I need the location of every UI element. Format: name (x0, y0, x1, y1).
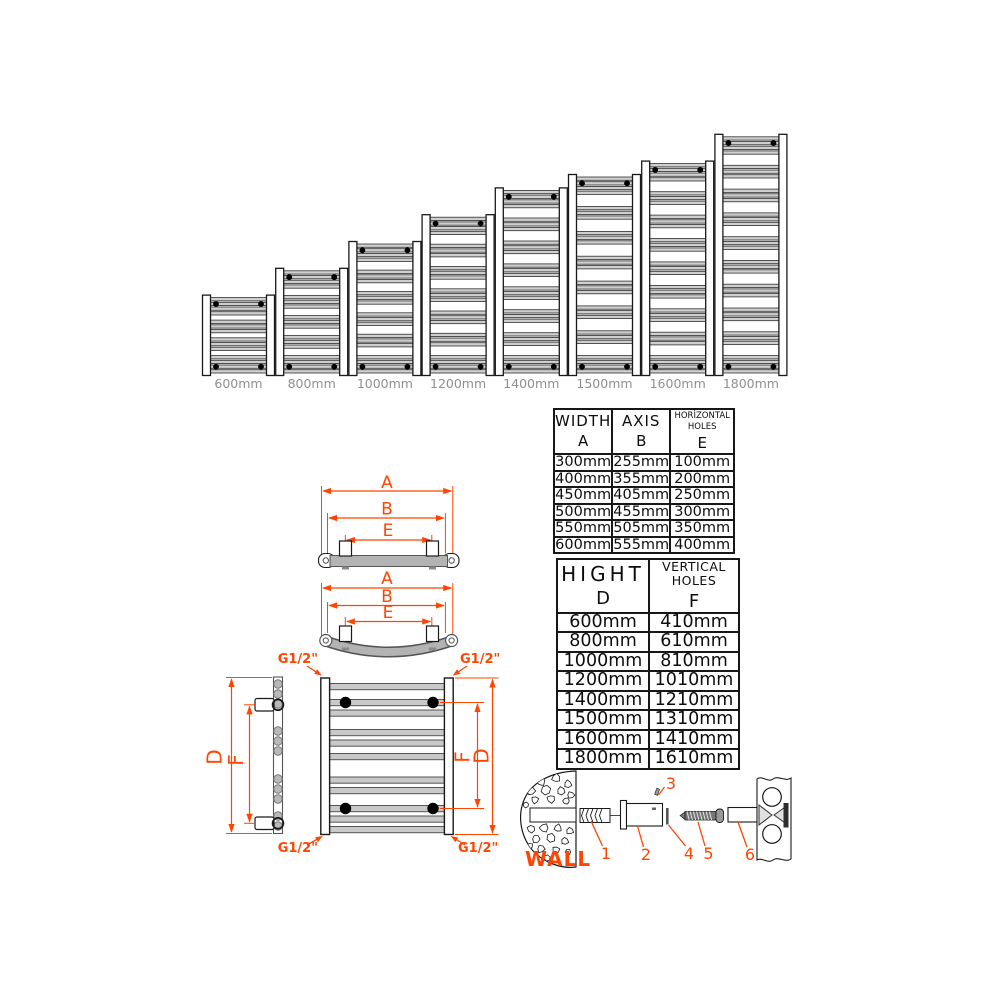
rung (357, 322, 413, 325)
spec-cell: 300mm (670, 504, 734, 521)
part-number: 2 (641, 845, 651, 864)
radiator-size-label: 1200mm (430, 376, 486, 391)
rung (650, 337, 706, 340)
grub-screw-hole (652, 808, 656, 811)
radiator-1800mm: 1800mm (715, 134, 787, 391)
mounting-hole (579, 180, 585, 186)
rung (650, 262, 706, 265)
rung (211, 320, 267, 323)
part-number: 3 (666, 774, 676, 793)
rung (577, 256, 633, 259)
column-letter: A (555, 432, 611, 450)
spec-cell: 350mm (670, 520, 734, 537)
spec-cell: 1410mm (649, 730, 739, 750)
connection-label: G1/2" (460, 652, 500, 667)
mounting-hole (331, 274, 337, 280)
tube-end (274, 775, 282, 783)
mounting-hole (213, 364, 219, 370)
rung (503, 370, 559, 373)
side-tube (559, 188, 567, 376)
spec-cell: 250mm (670, 487, 734, 504)
mounting-hole (427, 803, 438, 814)
rung (430, 294, 486, 297)
rung (577, 231, 633, 234)
rung (723, 246, 779, 249)
side-tube (413, 242, 421, 376)
radiator-size-label: 1400mm (503, 376, 559, 391)
rung (723, 218, 779, 221)
rung (723, 356, 779, 359)
rung (650, 290, 706, 293)
column-letter: E (671, 434, 733, 452)
dim-letter-height: D (470, 748, 494, 763)
spec-cell: 410mm (649, 613, 739, 633)
mounting-hole (405, 247, 411, 253)
rung (650, 309, 706, 312)
rung (357, 344, 413, 347)
rung (503, 190, 559, 193)
rung (503, 205, 559, 208)
rung (577, 211, 633, 214)
spec-row: 400mm355mm200mm (554, 471, 734, 488)
mounting-hole (652, 167, 658, 173)
rung (330, 730, 445, 736)
rung (650, 173, 706, 176)
rung (211, 302, 267, 305)
rung (723, 199, 779, 202)
column-letter: D (558, 588, 648, 609)
drill-hole (530, 808, 576, 822)
rail-eyelet (323, 638, 328, 643)
mounting-hole (551, 194, 557, 200)
side-tube (203, 295, 211, 375)
radiator-1600mm: 1600mm (642, 161, 714, 391)
side-tube (633, 175, 641, 376)
column-title: AXIS (613, 413, 669, 430)
rung (650, 248, 706, 251)
spec-cell: 505mm (612, 520, 670, 537)
rung (577, 306, 633, 309)
rung (723, 294, 779, 297)
side-tube (715, 134, 723, 375)
spec-cell: 1010mm (649, 671, 739, 691)
spec-row: 300mm255mm100mm (554, 454, 734, 471)
radiator-size-lineup: 600mm800mm1000mm1200mm1400mm1500mm1600mm… (203, 134, 787, 391)
mounting-hole (697, 364, 703, 370)
rung (284, 276, 340, 279)
spec-header-cell: WIDTHA (554, 409, 612, 454)
rung (723, 146, 779, 149)
rung (723, 308, 779, 311)
rung (650, 370, 706, 373)
rung (723, 142, 779, 145)
rung (723, 337, 779, 340)
mounting-hole (340, 697, 351, 708)
mounting-hole (433, 221, 439, 227)
screw-tip (680, 812, 685, 820)
rung (330, 754, 445, 760)
rung (723, 165, 779, 168)
radiator-800mm: 800mm (276, 268, 348, 391)
clamp-plate (784, 803, 789, 828)
rung (357, 301, 413, 304)
rung (503, 356, 559, 359)
rung (650, 356, 706, 359)
spec-cell: 1500mm (557, 710, 649, 730)
dim-letter-width: A (381, 569, 393, 589)
wall-label: WALL (525, 847, 591, 871)
side-tube (422, 215, 430, 376)
rung (503, 250, 559, 253)
rung (723, 170, 779, 173)
column-letter: B (613, 432, 669, 450)
rung (211, 307, 267, 310)
leader-line (698, 822, 705, 846)
rung (430, 222, 486, 225)
rung (284, 365, 340, 368)
rung (650, 285, 706, 288)
rung (650, 332, 706, 335)
rung (723, 265, 779, 268)
frontview-radiator-diagram: F D (321, 678, 499, 835)
rung (357, 258, 413, 261)
leader-line (307, 666, 321, 675)
spec-header-row: HIGHTDVERTICALHOLESF (557, 559, 739, 613)
rung (284, 305, 340, 308)
rung (357, 253, 413, 256)
mounting-hole (624, 364, 630, 370)
spec-row: 1200mm1010mm (557, 671, 739, 691)
radiator-size-label: 600mm (214, 376, 262, 391)
wall-bracket (427, 541, 439, 556)
side-tube (569, 175, 577, 376)
mounting-hole (697, 167, 703, 173)
spec-cell: 550mm (554, 520, 612, 537)
spec-cell: 1200mm (557, 671, 649, 691)
dim-letter-vertical-holes: F (224, 754, 248, 766)
width-spec-table: WIDTHAAXISBHORİZONTALHOLESE300mm255mm100… (553, 408, 735, 554)
rung (577, 216, 633, 219)
part-number: 6 (745, 845, 755, 864)
rung (284, 316, 340, 319)
mounting-hole (331, 364, 337, 370)
rung (723, 175, 779, 178)
rung (503, 287, 559, 290)
spec-row: 1600mm1410mm (557, 730, 739, 750)
radiator-size-label: 1000mm (357, 376, 413, 391)
spec-cell: 600mm (554, 537, 612, 554)
part-number: 5 (703, 844, 713, 863)
rung (430, 343, 486, 346)
rung (723, 151, 779, 154)
radiator-size-label: 1500mm (576, 376, 632, 391)
rung (430, 227, 486, 230)
rung (650, 243, 706, 246)
column-title: WIDTH (555, 413, 611, 430)
rung (430, 276, 486, 279)
rung (723, 332, 779, 335)
rung (577, 177, 633, 180)
mounting-hole (624, 180, 630, 186)
rung (430, 217, 486, 220)
rung (577, 370, 633, 373)
mounting-hole (771, 364, 777, 370)
rung (211, 298, 267, 301)
rung (330, 777, 445, 783)
rung (330, 740, 445, 746)
rung (430, 365, 486, 368)
rung (650, 271, 706, 274)
rung (430, 249, 486, 252)
rung (284, 356, 340, 359)
spec-cell: 455mm (612, 504, 670, 521)
bracket-foot (429, 567, 436, 570)
tube-end (274, 785, 282, 793)
mounting-hole (579, 364, 585, 370)
tube-end (274, 747, 282, 755)
rung (330, 788, 445, 794)
bracket-foot (429, 648, 436, 651)
rung (503, 319, 559, 322)
rung (357, 339, 413, 342)
rail-eyelet (323, 558, 328, 563)
column-letter: F (650, 591, 738, 612)
rung (650, 314, 706, 317)
rung (723, 317, 779, 320)
rung (577, 241, 633, 244)
radiator-1400mm: 1400mm (495, 188, 567, 391)
rung (577, 331, 633, 334)
height-spec-table: HIGHTDVERTICALHOLESF600mm410mm800mm610mm… (556, 558, 740, 770)
rung (577, 365, 633, 368)
wall-stone (547, 833, 555, 842)
mounting-hole (478, 364, 484, 370)
rung (723, 241, 779, 244)
rung (503, 292, 559, 295)
rung (503, 269, 559, 272)
radiator-size-label: 1800mm (723, 376, 779, 391)
rung (723, 284, 779, 287)
wall-bracket (340, 541, 352, 556)
rung (723, 370, 779, 373)
rung (650, 168, 706, 171)
rung (503, 273, 559, 276)
spec-cell: 810mm (649, 652, 739, 672)
rung (330, 827, 445, 833)
rung (577, 356, 633, 359)
rung (430, 333, 486, 336)
side-tube (706, 161, 714, 375)
spec-cell: 1000mm (557, 652, 649, 672)
mounting-hole (286, 274, 292, 280)
rail-eyelet (449, 638, 454, 643)
rail-eyelet (449, 558, 454, 563)
rung (430, 244, 486, 247)
side-tube (486, 215, 494, 376)
rung (284, 370, 340, 373)
spec-row: 1800mm1610mm (557, 749, 739, 769)
rung (357, 356, 413, 359)
rung (284, 360, 340, 363)
tube-end (274, 737, 282, 745)
rung (430, 267, 486, 270)
wall-bracket (340, 626, 352, 642)
dim-letter-width: A (381, 473, 393, 493)
leader-line (591, 821, 603, 846)
mounting-hole (478, 221, 484, 227)
rung (577, 360, 633, 363)
rung (211, 325, 267, 328)
rung (650, 342, 706, 345)
spec-cell: 255mm (612, 454, 670, 471)
rung (650, 295, 706, 298)
rung (650, 239, 706, 242)
rung (284, 345, 340, 348)
spec-cell: 555mm (612, 537, 670, 554)
rung (284, 285, 340, 288)
rung (650, 192, 706, 195)
tube-end (274, 727, 282, 735)
rung (357, 296, 413, 299)
rung (577, 281, 633, 284)
bracket-foot (342, 648, 349, 651)
mounting-hole (360, 247, 366, 253)
rung (211, 365, 267, 368)
rung (357, 370, 413, 373)
mounting-hole (258, 301, 264, 307)
rung (357, 249, 413, 252)
spec-row: 1400mm1210mm (557, 691, 739, 711)
rung (503, 360, 559, 363)
rung (503, 200, 559, 203)
column-title: HIGHT (558, 563, 648, 585)
rung (723, 289, 779, 292)
topview-straight-rail-diagram: A B E (319, 473, 460, 570)
rung (650, 318, 706, 321)
column-title: HOLES (650, 574, 738, 588)
side-tube (276, 268, 284, 375)
rung (723, 137, 779, 140)
side-tube (642, 161, 650, 375)
rung (357, 334, 413, 337)
rung (330, 684, 445, 690)
radiator-spec-sheet: 600mm800mm1000mm1200mm1400mm1500mm1600mm… (0, 0, 1000, 1000)
rung (577, 311, 633, 314)
mounting-hole (506, 364, 512, 370)
rung (430, 231, 486, 234)
column-title: HORİZONTAL (671, 411, 733, 422)
spec-cell: 500mm (554, 504, 612, 521)
rung (723, 341, 779, 344)
rung (284, 336, 340, 339)
spec-row: 600mm555mm400mm (554, 537, 734, 554)
rung (503, 241, 559, 244)
rung (503, 223, 559, 226)
mounting-hole (652, 364, 658, 370)
spec-cell: 1210mm (649, 691, 739, 711)
rung (357, 275, 413, 278)
side-tube (349, 242, 357, 376)
spec-row: 1000mm810mm (557, 652, 739, 672)
spec-cell: 405mm (612, 487, 670, 504)
leader-line (738, 822, 747, 847)
rung (650, 360, 706, 363)
rung (650, 267, 706, 270)
rung (577, 291, 633, 294)
rung (503, 333, 559, 336)
spec-drawing-canvas: 600mm800mm1000mm1200mm1400mm1500mm1600mm… (0, 0, 1000, 1000)
rung (577, 182, 633, 185)
bracket-plate (621, 801, 627, 830)
side-tube (321, 678, 330, 835)
spec-header-cell: HORİZONTALHOLESE (670, 409, 734, 454)
rung (211, 338, 267, 341)
side-tube (340, 268, 348, 375)
rung (430, 320, 486, 323)
mounting-hole (771, 140, 777, 146)
tube-end (274, 680, 282, 688)
tube-cross-section (763, 825, 782, 844)
rung (430, 360, 486, 363)
rung (577, 236, 633, 239)
rung (430, 298, 486, 301)
mounting-hole (726, 140, 732, 146)
locking-pin (666, 808, 669, 825)
dim-letter-holes: E (383, 521, 394, 541)
rung (503, 342, 559, 345)
rung (357, 292, 413, 295)
rung (577, 340, 633, 343)
column-title: VERTICAL (650, 560, 738, 574)
rung (330, 710, 445, 716)
spec-header-cell: VERTICALHOLESF (649, 559, 739, 613)
rung (723, 237, 779, 240)
spec-cell: 400mm (554, 471, 612, 488)
rung (577, 261, 633, 264)
spec-cell: 1600mm (557, 730, 649, 750)
rung (357, 244, 413, 247)
wall-bracket (255, 817, 274, 830)
spec-cell: 1400mm (557, 691, 649, 711)
rung (577, 286, 633, 289)
rung (284, 340, 340, 343)
spec-cell: 100mm (670, 454, 734, 471)
rung (284, 296, 340, 299)
spec-cell: 300mm (554, 454, 612, 471)
spec-cell: 610mm (649, 632, 739, 652)
rung (650, 178, 706, 181)
spec-row: 1500mm1310mm (557, 710, 739, 730)
rung (503, 218, 559, 221)
mounting-hole (405, 364, 411, 370)
mounting-hole (551, 364, 557, 370)
rung (284, 300, 340, 303)
tube-end (274, 795, 282, 803)
topview-curved-rail-diagram: A B E (320, 569, 458, 652)
rung (357, 318, 413, 321)
wall-bracket (427, 626, 439, 642)
rung (577, 207, 633, 210)
rung (503, 227, 559, 230)
rung (211, 360, 267, 363)
rung (284, 280, 340, 283)
spec-header-cell: AXISB (612, 409, 670, 454)
radiator-1200mm: 1200mm (422, 215, 494, 391)
radiator-size-label: 1600mm (650, 376, 706, 391)
spec-cell: 800mm (557, 632, 649, 652)
rung (211, 347, 267, 350)
rung (723, 222, 779, 225)
